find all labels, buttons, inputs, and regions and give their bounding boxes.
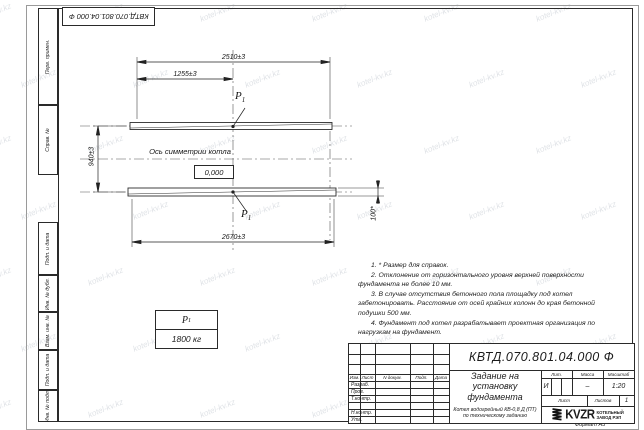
tb-doc-number: КВТД.070.801.04.000 Ф [449, 344, 634, 370]
logo-text: KVZR [565, 408, 594, 422]
tb-sheet-label: Лист [541, 395, 587, 406]
logo-caption: КОТЕЛЬНЫЙ ЗАВОД РЭП [597, 410, 624, 420]
tb-row-prov: Пров. [349, 388, 375, 395]
title-block: Изм. Лист N докум. Подп. Дата Разраб. Пр… [348, 343, 635, 424]
tb-row-tkontr: Т.контр. [349, 395, 375, 402]
tb-logo-cell: KVZR КОТЕЛЬНЫЙ ЗАВОД РЭП [541, 406, 634, 423]
tb-line [410, 344, 411, 423]
tb-line [433, 344, 434, 423]
coil-icon [551, 408, 563, 421]
tb-line [349, 364, 449, 365]
tb-line [375, 344, 376, 423]
drawing-sheet: kotel-kv.kzkotel-kv.kzkotel-kv.kzkotel-k… [0, 0, 644, 430]
dim-height: 100* [371, 194, 378, 234]
tb-line [551, 378, 552, 395]
tb-line [561, 378, 562, 395]
doc-number-top-box: КВТД.070.801.04.000 Ф [62, 7, 155, 26]
tb-col-izm: Изм. [349, 374, 360, 381]
tb-line [349, 354, 449, 355]
tb-lit-label: Лит. [541, 370, 572, 378]
note-item: 2. Отклонение от горизонтального уровня … [358, 271, 616, 290]
axis-of-symmetry-label: Ось симметрии котла [140, 147, 240, 156]
load-table-value: 1800 кг [156, 330, 217, 348]
tb-mass-label: Масса [572, 370, 603, 378]
tb-col-podp: Подп. [410, 374, 433, 381]
tb-subject: Котел водогрейный КВ-0,8 Д (ПТ) по техни… [449, 403, 541, 423]
tb-col-ndocum: N докум. [375, 374, 410, 381]
tb-row-razrab: Разраб. [349, 381, 375, 388]
dim-top: 2510±3 [203, 54, 264, 61]
load-point-label-top: P1 [235, 90, 245, 104]
level-mark: 0,000 [205, 168, 224, 177]
tb-col-list: Лист [360, 374, 375, 381]
tb-scale-value: 1:20 [603, 378, 634, 395]
tb-row-empty [349, 402, 375, 409]
dim-vertical: 940±3 [89, 137, 96, 177]
note-item: 1. * Размер для справок. [358, 261, 616, 271]
tb-mass-value: – [572, 378, 603, 395]
tb-row-utv: Утв. [349, 416, 375, 423]
tb-lit-value: И [541, 378, 551, 395]
tb-title: Задание на установку фундамента [449, 370, 541, 403]
note-item: 4. Фундамент под котел разрабатывает про… [358, 319, 616, 338]
note-item: 3. В случае отсутствия бетонного пола пл… [358, 290, 616, 319]
dim-half: 1255±3 [155, 71, 215, 78]
load-table: P1 1800 кг [155, 310, 218, 349]
company-logo: KVZR КОТЕЛЬНЫЙ ЗАВОД РЭП [551, 408, 624, 421]
foundation-strip-top [130, 123, 332, 130]
doc-number-rotated: КВТД.070.801.04.000 Ф [69, 12, 149, 21]
notes-block: 1. * Размер для справок. 2. Отклонение о… [358, 261, 616, 338]
tb-scale-label: Масштаб [603, 370, 634, 378]
tb-row-nkontr: Н.контр. [349, 409, 375, 416]
dim-bottom: 2670±3 [203, 234, 264, 241]
load-table-header: P1 [156, 311, 217, 330]
tb-sheets-value: 1 [619, 395, 634, 406]
tb-col-data: Дата [433, 374, 449, 381]
tb-sheets-label: Листов [587, 395, 619, 406]
level-mark-box: 0,000 [194, 165, 234, 179]
load-point-label-bottom: P1 [241, 208, 251, 222]
